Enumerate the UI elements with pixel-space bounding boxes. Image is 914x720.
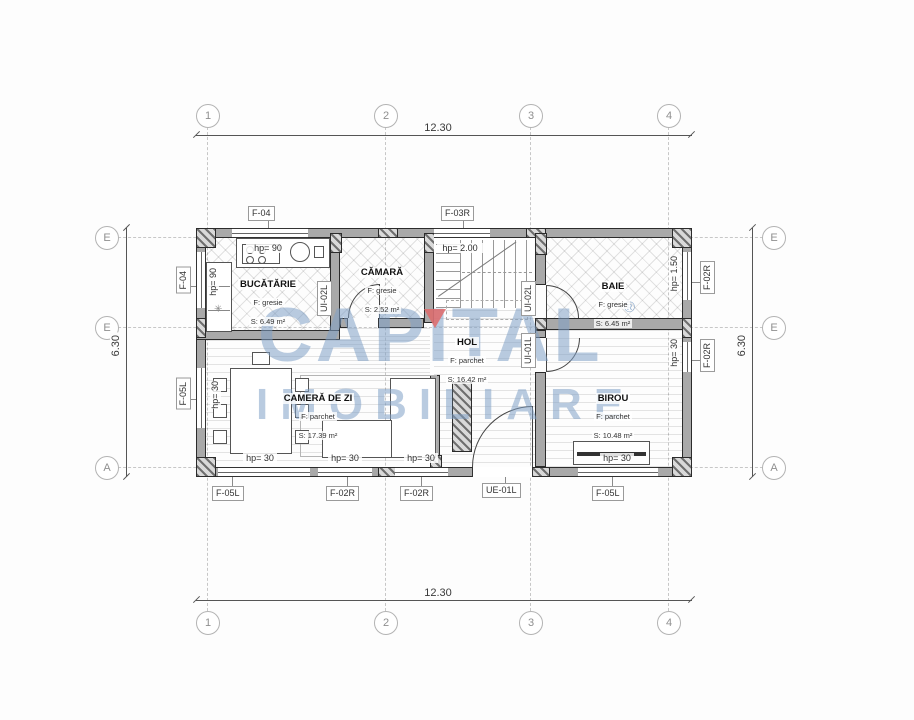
room-finish: F: gresie bbox=[251, 298, 284, 307]
stove-burner bbox=[246, 256, 254, 264]
room-area: S: 16.42 m² bbox=[446, 375, 489, 384]
sill-right-bath: hp= 1.50 bbox=[669, 256, 680, 291]
column bbox=[672, 228, 692, 248]
dimension-line-left bbox=[126, 228, 127, 477]
grid-bubble-right-A: A bbox=[762, 456, 786, 480]
leader bbox=[612, 477, 613, 486]
room-finish: F: gresie bbox=[596, 300, 629, 309]
stove-burner bbox=[258, 256, 266, 264]
room-name: CĂMARĂ bbox=[359, 267, 405, 278]
window-living-bottom-2 bbox=[318, 467, 372, 477]
room-name: BIROU bbox=[596, 393, 631, 404]
window-bath-right bbox=[682, 252, 692, 300]
dim-right-value: 6.30 bbox=[736, 332, 748, 359]
room-finish: F: parchet bbox=[448, 356, 486, 365]
grid-bubble-bottom-4: 4 bbox=[657, 611, 681, 635]
grid-bubble-left-A: A bbox=[95, 456, 119, 480]
sill-bottom-2: hp= 30 bbox=[328, 453, 362, 463]
sill-bottom-4: hp= 30 bbox=[600, 453, 634, 463]
room-label-hall: HOL F: parchet S: 16.42 m² bbox=[424, 332, 510, 387]
leader bbox=[347, 477, 348, 486]
dim-tick bbox=[123, 473, 130, 480]
grid-bubble-top-3: 3 bbox=[519, 104, 543, 128]
tag-window-f03r-top: F-03R bbox=[441, 206, 474, 221]
grid-bubble-bottom-3: 3 bbox=[519, 611, 543, 635]
tag-window-f05l-bottom-2: F-05L bbox=[592, 486, 624, 501]
dim-left-value: 6.30 bbox=[110, 332, 122, 359]
room-label-office: BIROU F: parchet S: 10.48 m² bbox=[570, 388, 656, 443]
room-finish: F: parchet bbox=[594, 412, 632, 421]
dim-top-value: 12.30 bbox=[405, 122, 471, 134]
column bbox=[330, 233, 342, 253]
tag-door-ui01l-office: UI-01L bbox=[521, 333, 536, 368]
dim-tick bbox=[688, 596, 695, 603]
column bbox=[196, 318, 206, 338]
grid-bubble-right-E2: E bbox=[762, 316, 786, 340]
leader bbox=[191, 399, 196, 400]
dim-tick bbox=[749, 473, 756, 480]
room-label-bath: BAIE F: gresie S: 6.45 m² bbox=[570, 276, 656, 331]
tag-door-ui02l-bath: UI-02L bbox=[521, 281, 536, 316]
column bbox=[378, 228, 398, 238]
kitchen-sink bbox=[290, 242, 310, 262]
room-name: BAIE bbox=[600, 281, 627, 292]
grid-bubble-bottom-2: 2 bbox=[374, 611, 398, 635]
window-office-bottom bbox=[578, 467, 658, 477]
room-finish: F: gresie bbox=[365, 286, 398, 295]
room-area: S: 10.48 m² bbox=[592, 431, 635, 440]
window-living-left bbox=[196, 368, 206, 428]
window-office-right bbox=[682, 342, 692, 372]
leader bbox=[463, 221, 464, 228]
entry-door-opening bbox=[472, 467, 533, 477]
window-kitchen-left bbox=[196, 252, 206, 308]
tag-window-f05l-left: F-05L bbox=[176, 378, 191, 410]
grid-bubble-top-4: 4 bbox=[657, 104, 681, 128]
grid-bubble-bottom-1: 1 bbox=[196, 611, 220, 635]
tag-window-f02r-bottom-2: F-02R bbox=[400, 486, 433, 501]
tag-window-f02r-right-bottom: F-02R bbox=[700, 339, 715, 372]
window-living-bottom-1 bbox=[218, 467, 310, 477]
grid-bubble-top-2: 2 bbox=[374, 104, 398, 128]
column bbox=[682, 318, 692, 338]
room-label-pantry: CĂMARĂ F: gresie S: 2.52 m² bbox=[340, 262, 424, 317]
grid-bubble-top-1: 1 bbox=[196, 104, 220, 128]
room-finish: F: parchet bbox=[299, 412, 337, 421]
grid-bubble-left-E1: E bbox=[95, 226, 119, 250]
column bbox=[535, 233, 547, 255]
room-label-living: CAMERĂ DE ZI F: parchet S: 17.39 m² bbox=[255, 388, 381, 443]
tag-entry-door-ue01l: UE-01L bbox=[482, 483, 521, 498]
watermark-triangle-icon bbox=[424, 309, 446, 328]
sill-top-kitchen: hp= 90 bbox=[246, 243, 290, 253]
room-area: S: 6.45 m² bbox=[594, 319, 633, 328]
column bbox=[672, 457, 692, 477]
tag-window-f02r-bottom-1: F-02R bbox=[326, 486, 359, 501]
dim-tick bbox=[688, 131, 695, 138]
room-area: S: 6.49 m² bbox=[249, 317, 288, 326]
stairs-walk-line bbox=[462, 272, 532, 273]
dimension-line-bottom bbox=[196, 600, 692, 601]
dimension-line-right bbox=[752, 228, 753, 477]
floor-plan-canvas: 1 2 3 4 1 2 3 4 E E A E E A 12.30 12.30 … bbox=[0, 0, 914, 720]
window-kitchen-top bbox=[232, 228, 308, 238]
tag-window-f05l-bottom-1: F-05L bbox=[212, 486, 244, 501]
tag-window-f04-top: F-04 bbox=[248, 206, 275, 221]
leader bbox=[191, 286, 196, 287]
sill-bottom-1: hp= 30 bbox=[243, 453, 277, 463]
room-name: HOL bbox=[455, 337, 479, 348]
room-name: BUCĂTĂRIE bbox=[238, 279, 298, 290]
tag-window-f02r-right-top: F-02R bbox=[700, 261, 715, 294]
sill-top-stairs: hp= 2.00 bbox=[437, 243, 483, 253]
leader bbox=[421, 477, 422, 486]
sill-left-living: hp= 30 bbox=[210, 381, 221, 409]
room-area: S: 17.39 m² bbox=[297, 431, 340, 440]
room-name: CAMERĂ DE ZI bbox=[282, 393, 355, 404]
column bbox=[196, 457, 216, 477]
sill-right-office: hp= 30 bbox=[669, 339, 680, 367]
column bbox=[196, 228, 216, 248]
leader bbox=[692, 360, 700, 361]
grid-bubble-right-E1: E bbox=[762, 226, 786, 250]
window-stairs-top bbox=[434, 228, 490, 238]
room-area: S: 2.52 m² bbox=[363, 305, 402, 314]
window-living-bottom-3 bbox=[395, 467, 448, 477]
room-label-kitchen: BUCĂTĂRIE F: gresie S: 6.49 m² bbox=[212, 274, 324, 329]
column bbox=[530, 467, 550, 477]
leader bbox=[268, 221, 269, 228]
kitchen-tap bbox=[314, 246, 324, 258]
sill-bottom-3: hp= 30 bbox=[404, 453, 438, 463]
leader bbox=[232, 477, 233, 486]
leader bbox=[692, 282, 700, 283]
chair bbox=[213, 430, 227, 444]
tag-window-f04-left: F-04 bbox=[176, 267, 191, 294]
dimension-line-top bbox=[196, 135, 692, 136]
dim-bottom-value: 12.30 bbox=[405, 587, 471, 599]
